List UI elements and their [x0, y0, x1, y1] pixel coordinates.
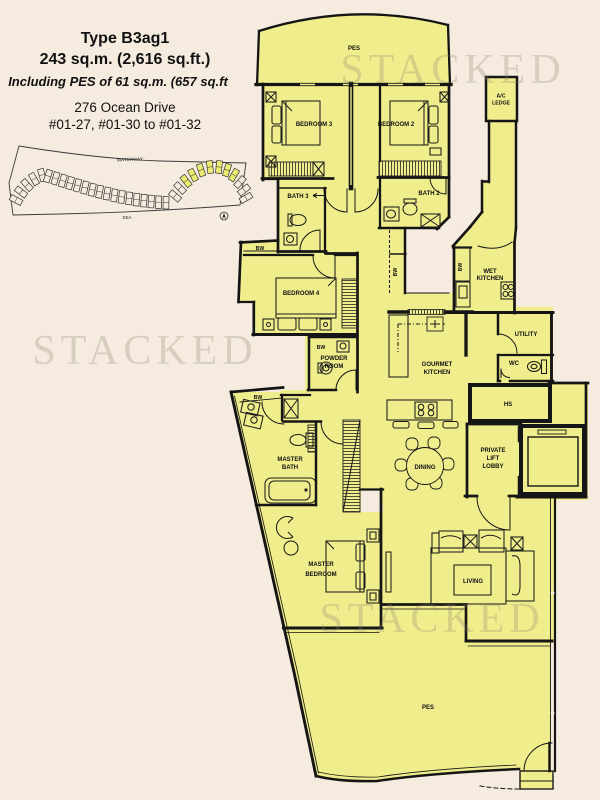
svg-text:PES: PES — [422, 705, 434, 711]
svg-text:DINING: DINING — [415, 465, 436, 471]
svg-text:SEA: SEA — [122, 215, 132, 220]
svg-text:Type B3ag1: Type B3ag1 — [81, 30, 170, 47]
svg-text:PRIVATE: PRIVATE — [480, 448, 505, 454]
svg-text:STACKED: STACKED — [32, 328, 257, 374]
svg-text:#01-27, #01-30 to #01-32: #01-27, #01-30 to #01-32 — [49, 117, 201, 132]
svg-text:GOURMET: GOURMET — [422, 362, 453, 368]
svg-text:KITCHEN: KITCHEN — [477, 276, 504, 282]
svg-text:MASTER: MASTER — [308, 562, 334, 568]
svg-text:KITCHEN: KITCHEN — [424, 370, 451, 376]
svg-text:BATH 3: BATH 3 — [287, 194, 309, 200]
svg-text:BW: BW — [254, 395, 263, 401]
svg-text:BW: BW — [317, 345, 326, 351]
svg-text:ROOM: ROOM — [325, 364, 344, 370]
svg-text:WC: WC — [509, 361, 520, 367]
svg-text:BATH: BATH — [282, 465, 298, 471]
svg-text:HS: HS — [504, 402, 512, 408]
svg-text:UTILITY: UTILITY — [515, 332, 538, 338]
svg-text:LIFT: LIFT — [487, 456, 500, 462]
svg-text:BEDROOM: BEDROOM — [305, 572, 336, 578]
svg-text:Including PES of 61 sq.m. (657: Including PES of 61 sq.m. (657 sq.ft — [8, 74, 228, 89]
svg-text:MASTER: MASTER — [277, 457, 303, 463]
svg-text:BEDROOM 3: BEDROOM 3 — [296, 122, 333, 128]
svg-text:BW: BW — [256, 246, 265, 252]
svg-text:LEDGE: LEDGE — [492, 101, 510, 107]
svg-text:STACKED: STACKED — [340, 47, 565, 93]
svg-text:BW: BW — [458, 263, 464, 272]
svg-text:LOBBY: LOBBY — [483, 464, 504, 470]
svg-text:243 sq.m. (2,616 sq.ft.): 243 sq.m. (2,616 sq.ft.) — [40, 51, 211, 68]
svg-text:A/C: A/C — [497, 94, 506, 100]
svg-text:LIVING: LIVING — [463, 579, 483, 585]
svg-text:STACKED: STACKED — [319, 596, 544, 642]
svg-text:276 Ocean Drive: 276 Ocean Drive — [74, 100, 175, 115]
svg-text:BEDROOM 4: BEDROOM 4 — [283, 291, 320, 297]
svg-text:BEDROOM 2: BEDROOM 2 — [378, 122, 415, 128]
svg-text:WATERWAY: WATERWAY — [117, 157, 143, 163]
svg-text:WET: WET — [483, 269, 497, 275]
svg-text:BATH 2: BATH 2 — [418, 191, 440, 197]
svg-text:POWDER: POWDER — [321, 356, 349, 362]
svg-text:BW: BW — [393, 268, 399, 277]
